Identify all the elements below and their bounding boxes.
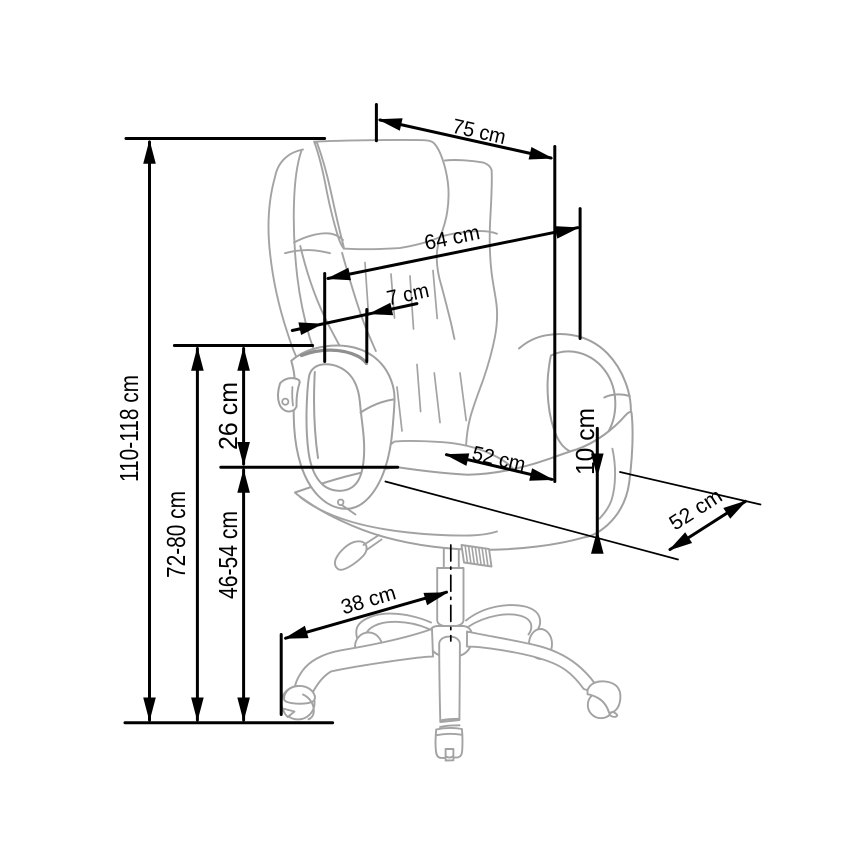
svg-text:26 cm: 26 cm <box>213 382 243 450</box>
svg-text:110-118 cm: 110-118 cm <box>114 375 144 482</box>
svg-text:72-80 cm: 72-80 cm <box>161 491 191 578</box>
svg-text:46-54 cm: 46-54 cm <box>213 511 243 599</box>
svg-text:10 cm: 10 cm <box>570 408 600 475</box>
